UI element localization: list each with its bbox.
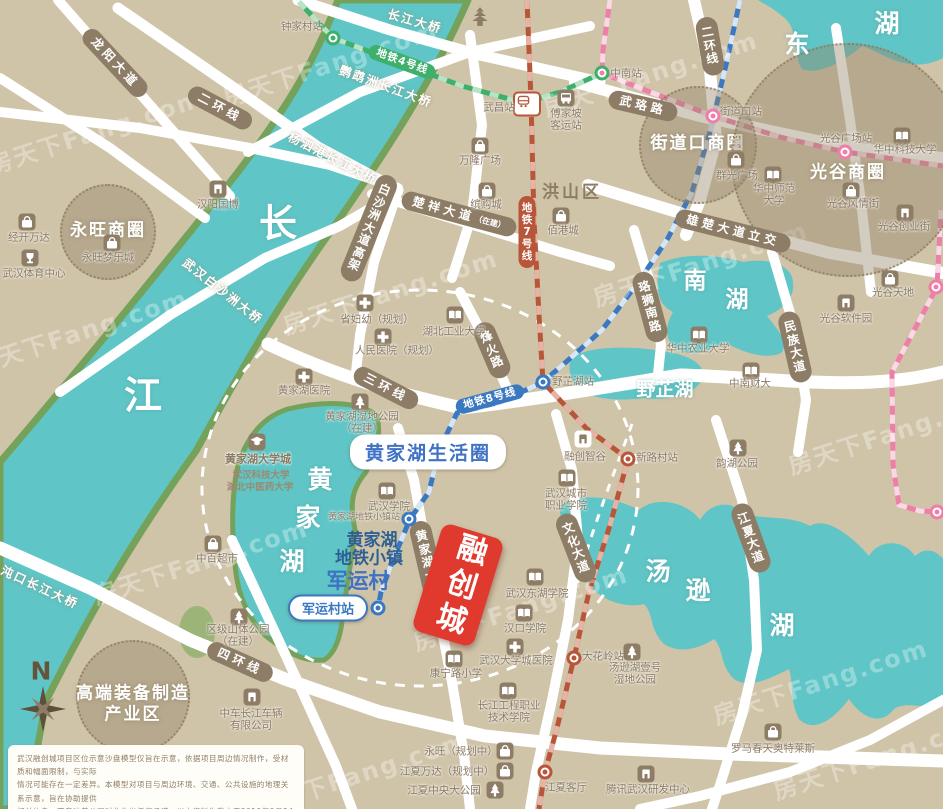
compass-north-label: N <box>31 657 52 686</box>
compass-star-icon <box>19 685 67 733</box>
disclaimer: 武汉融创城项目区位示意沙盘模型仅旨在示意，依据项目周边情况制作，受材质和幅面限制… <box>8 745 304 809</box>
location-map: 房天下Fang.com房天下Fang.com房天下Fang.com房天下Fang… <box>0 0 943 809</box>
map-base-geometry <box>0 0 943 809</box>
